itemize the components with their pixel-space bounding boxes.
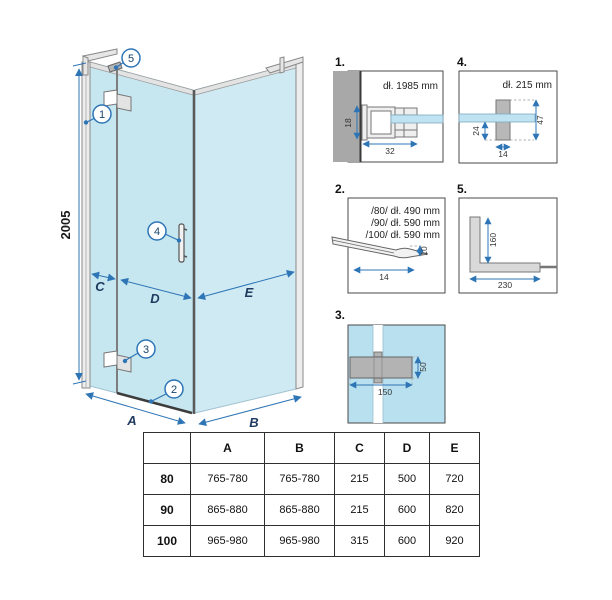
detail-2-dim-width: 14: [379, 272, 389, 282]
detail-1-dim-width: 32: [385, 146, 395, 156]
detail-3-dim-height: 50: [418, 362, 428, 372]
table-cell: 865-880: [191, 495, 265, 526]
detail-2-dim-height: 10: [419, 246, 429, 256]
right-wall-profile: [296, 61, 303, 389]
detail-1-label: 1.: [335, 55, 345, 69]
row-label: 90: [144, 495, 191, 526]
table-cell: 920: [430, 526, 480, 557]
dim-label-c: C: [95, 279, 105, 294]
table-row-80: 80 765-780 765-780 215 500 720: [144, 464, 480, 495]
detail-3-dim-width: 150: [378, 387, 392, 397]
table-cell: 765-780: [265, 464, 335, 495]
detail-1-dim-height: 18: [343, 118, 353, 128]
table-cell: 215: [335, 495, 385, 526]
hinge-section: [350, 357, 412, 378]
table-cell: 820: [430, 495, 480, 526]
main-drawing: 2005 C D E A B 5 1 4: [40, 28, 320, 440]
svg-text:4: 4: [154, 226, 160, 238]
table-cell: 600: [385, 495, 430, 526]
detail-3-label: 3.: [335, 308, 345, 322]
technical-diagram-page: 2005 C D E A B 5 1 4: [0, 0, 612, 600]
table-header-e: E: [430, 433, 480, 464]
height-dimension-label: 2005: [58, 211, 73, 240]
detail-4-dim-height: 47: [535, 115, 545, 125]
svg-text:1: 1: [99, 109, 105, 121]
dim-label-d: D: [150, 291, 160, 306]
table-cell: 965-980: [265, 526, 335, 557]
detail-5: 5. 160 230: [452, 176, 567, 302]
detail-4: 4. dł. 215 mm 24 47 14: [452, 44, 567, 170]
table-cell: 600: [385, 526, 430, 557]
detail-3: 3. 150 50: [330, 304, 456, 430]
detail-2-line3: /100/ dł. 590 mm: [366, 230, 440, 241]
dim-label-a: A: [126, 413, 136, 428]
dim-label-b: B: [249, 415, 258, 430]
table-cell: 315: [335, 526, 385, 557]
table-cell: 720: [430, 464, 480, 495]
svg-text:2: 2: [171, 384, 177, 396]
table-header-a: A: [191, 433, 265, 464]
detail-5-dim-vertical: 160: [488, 233, 498, 247]
table-cell: 500: [385, 464, 430, 495]
row-label: 100: [144, 526, 191, 557]
detail-2-line2: /90/ dł. 590 mm: [371, 218, 440, 229]
detail-2-line1: /80/ dł. 490 mm: [371, 206, 440, 217]
callout-5: 5: [114, 49, 140, 70]
right-glass-panel: [195, 63, 296, 413]
detail-2: 2. /80/ dł. 490 mm /90/ dł. 590 mm /100/…: [330, 176, 456, 302]
table-row-90: 90 865-880 865-880 215 600 820: [144, 495, 480, 526]
detail-5-label: 5.: [457, 182, 467, 196]
table-header-d: D: [385, 433, 430, 464]
table-row-100: 100 965-980 965-980 315 600 920: [144, 526, 480, 557]
detail-4-length: dł. 215 mm: [503, 80, 552, 91]
glass-section: [391, 115, 443, 123]
table-header-b: B: [265, 433, 335, 464]
table-cell: 765-780: [191, 464, 265, 495]
detail-5-dim-horizontal: 230: [498, 280, 512, 290]
table-header-row: A B C D E: [144, 433, 480, 464]
table-header-c: C: [335, 433, 385, 464]
glass-section: [459, 114, 535, 122]
detail-1-length: dł. 1985 mm: [383, 81, 438, 92]
dimensions-table: A B C D E 80 765-780 765-780 215 500 720…: [143, 432, 480, 557]
detail-2-label: 2.: [335, 182, 345, 196]
wall-section: [333, 71, 360, 162]
detail-1: 1. dł. 1985 mm 18 32: [330, 44, 456, 170]
detail-4-dim-offset: 24: [471, 126, 481, 136]
table-corner-cell: [144, 433, 191, 464]
table-cell: 865-880: [265, 495, 335, 526]
row-label: 80: [144, 464, 191, 495]
detail-4-dim-width: 14: [498, 149, 508, 159]
svg-text:3: 3: [143, 344, 149, 356]
svg-text:5: 5: [128, 53, 134, 65]
table-cell: 215: [335, 464, 385, 495]
table-cell: 965-980: [191, 526, 265, 557]
detail-4-label: 4.: [457, 55, 467, 69]
dim-label-e: E: [245, 285, 254, 300]
